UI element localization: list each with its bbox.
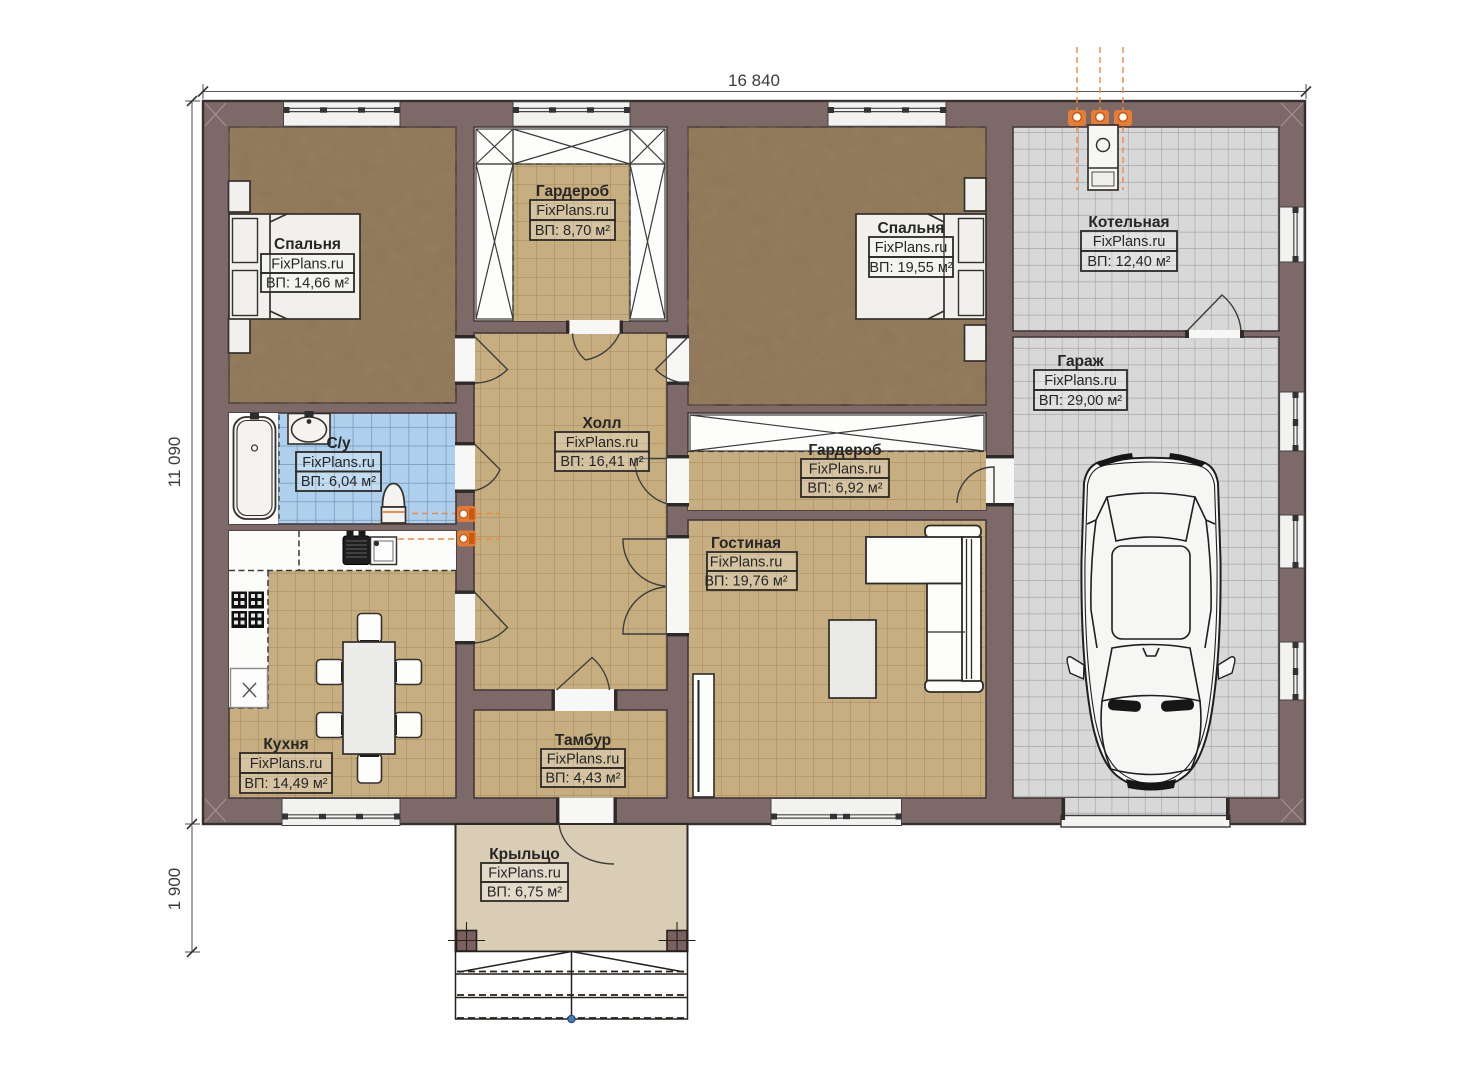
- svg-text:Кухня: Кухня: [263, 736, 308, 753]
- svg-text:ВП: 14,49 м²: ВП: 14,49 м²: [244, 776, 327, 792]
- svg-text:ВП: 19,76 м²: ВП: 19,76 м²: [704, 574, 787, 590]
- svg-text:1 900: 1 900: [165, 868, 184, 911]
- svg-text:FixPlans.ru: FixPlans.ru: [566, 435, 639, 451]
- svg-text:FixPlans.ru: FixPlans.ru: [1093, 234, 1166, 250]
- svg-text:Котельная: Котельная: [1088, 214, 1169, 231]
- svg-text:ВП: 8,70 м²: ВП: 8,70 м²: [535, 223, 610, 239]
- svg-text:ВП: 19,55 м²: ВП: 19,55 м²: [869, 260, 952, 276]
- svg-text:Гардероб: Гардероб: [808, 442, 881, 459]
- svg-text:ВП: 4,43 м²: ВП: 4,43 м²: [545, 771, 620, 787]
- svg-text:ВП: 6,92 м²: ВП: 6,92 м²: [807, 481, 882, 497]
- svg-text:FixPlans.ru: FixPlans.ru: [875, 240, 948, 256]
- svg-text:FixPlans.ru: FixPlans.ru: [547, 752, 620, 768]
- svg-text:Спальня: Спальня: [878, 220, 945, 237]
- svg-text:ВП: 6,75 м²: ВП: 6,75 м²: [487, 885, 562, 901]
- svg-text:Спальня: Спальня: [274, 236, 341, 253]
- svg-text:FixPlans.ru: FixPlans.ru: [536, 203, 609, 219]
- svg-text:FixPlans.ru: FixPlans.ru: [809, 462, 882, 478]
- svg-text:Холл: Холл: [583, 415, 622, 432]
- svg-text:FixPlans.ru: FixPlans.ru: [302, 455, 375, 471]
- svg-text:FixPlans.ru: FixPlans.ru: [271, 257, 344, 273]
- svg-text:FixPlans.ru: FixPlans.ru: [1044, 373, 1117, 389]
- svg-text:Крыльцо: Крыльцо: [489, 846, 560, 863]
- svg-text:Гардероб: Гардероб: [536, 183, 609, 200]
- svg-text:FixPlans.ru: FixPlans.ru: [710, 555, 783, 571]
- svg-text:ВП: 16,41 м²: ВП: 16,41 м²: [560, 454, 643, 470]
- svg-text:Тамбур: Тамбур: [555, 732, 611, 749]
- svg-text:ВП: 6,04 м²: ВП: 6,04 м²: [301, 474, 376, 490]
- svg-text:FixPlans.ru: FixPlans.ru: [488, 866, 561, 882]
- svg-text:16 840: 16 840: [728, 71, 780, 90]
- svg-text:FixPlans.ru: FixPlans.ru: [250, 756, 323, 772]
- svg-text:Гостиная: Гостиная: [711, 535, 781, 552]
- svg-text:ВП: 14,66 м²: ВП: 14,66 м²: [266, 276, 349, 292]
- svg-text:Гараж: Гараж: [1057, 353, 1104, 370]
- svg-text:ВП: 29,00 м²: ВП: 29,00 м²: [1039, 393, 1122, 409]
- svg-text:11 090: 11 090: [165, 437, 184, 488]
- svg-text:С/у: С/у: [326, 435, 351, 452]
- svg-text:ВП: 12,40 м²: ВП: 12,40 м²: [1087, 254, 1170, 270]
